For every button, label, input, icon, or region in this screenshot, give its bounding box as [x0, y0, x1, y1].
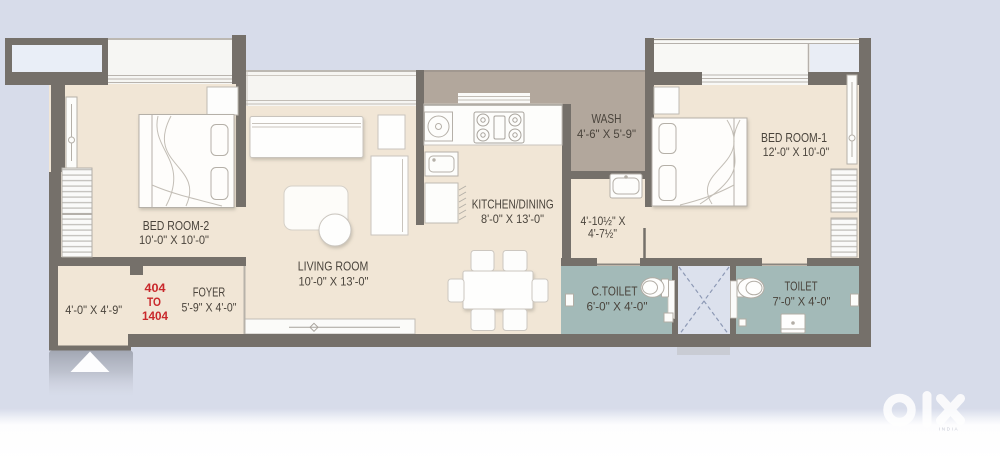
svg-text:BED ROOM-1: BED ROOM-1	[761, 130, 827, 145]
svg-text:4'-10½" X: 4'-10½" X	[581, 215, 626, 228]
svg-text:TOILET: TOILET	[785, 279, 818, 294]
svg-text:10'-0" X 10'-0": 10'-0" X 10'-0"	[139, 234, 209, 247]
svg-text:C.TOILET: C.TOILET	[592, 284, 638, 299]
svg-text:5'-9" X 4'-0": 5'-9" X 4'-0"	[182, 302, 237, 315]
svg-text:4'-6" X 5'-9": 4'-6" X 5'-9"	[577, 128, 636, 141]
svg-text:KITCHEN/DINING: KITCHEN/DINING	[472, 197, 554, 212]
svg-text:INDIA: INDIA	[939, 427, 959, 432]
svg-text:TO: TO	[147, 295, 161, 309]
svg-text:8'-0" X 13'-0": 8'-0" X 13'-0"	[481, 213, 544, 226]
svg-text:BED ROOM-2: BED ROOM-2	[143, 218, 210, 233]
svg-text:1404: 1404	[142, 309, 168, 323]
svg-text:LIVING ROOM: LIVING ROOM	[298, 259, 369, 274]
svg-text:12'-0" X 10'-0": 12'-0" X 10'-0"	[763, 146, 830, 159]
svg-text:404: 404	[145, 281, 166, 295]
svg-text:4'-0" X 4'-9": 4'-0" X 4'-9"	[65, 304, 122, 317]
svg-text:10'-0" X 13'-0": 10'-0" X 13'-0"	[299, 276, 369, 289]
svg-text:4'-7½": 4'-7½"	[588, 228, 617, 241]
svg-text:7'-0" X 4'-0": 7'-0" X 4'-0"	[773, 296, 831, 309]
svg-text:FOYER: FOYER	[193, 285, 226, 300]
svg-text:6'-0" X 4'-0": 6'-0" X 4'-0"	[587, 301, 648, 314]
svg-text:WASH: WASH	[592, 111, 622, 126]
